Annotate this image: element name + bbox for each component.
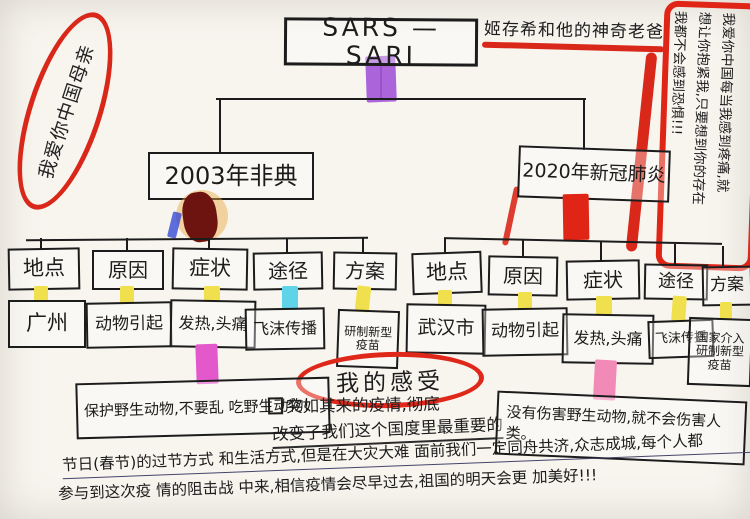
category-label: 症状 — [189, 257, 231, 281]
category-label: 原因 — [503, 264, 543, 287]
value-label: 广州 — [26, 312, 68, 336]
tree-line — [674, 244, 676, 266]
category-label: 方案 — [710, 276, 744, 296]
category-box: 原因 — [488, 255, 559, 296]
red-highlight-connector — [563, 194, 590, 240]
small-square-doodle — [268, 397, 283, 414]
category-box: 症状 — [566, 259, 641, 300]
tree-line — [600, 242, 602, 262]
category-box: 方案 — [333, 251, 398, 290]
value-label: 飞沫传播 — [253, 319, 317, 338]
tree-line — [583, 98, 585, 150]
value-label: 武汉市 — [417, 318, 474, 340]
value-label: 发热,头痛 — [178, 314, 247, 333]
title-text: SARS — SARI — [287, 13, 475, 70]
category-box: 地点 — [411, 251, 482, 295]
category-label: 症状 — [583, 268, 623, 291]
rotated-note-line: 我爱你中国每当我感到疼痛,就 — [712, 12, 740, 253]
category-box: 症状 — [172, 247, 249, 290]
category-label: 原因 — [108, 259, 148, 281]
branch-label: 2003年非典 — [164, 163, 297, 190]
branch-box-2003: 2003年非典 — [148, 152, 314, 200]
rotated-note-line: 我都不会感到恐惧!!! — [664, 11, 692, 252]
value-label: 动物引起 — [491, 322, 559, 342]
category-box: 地点 — [8, 247, 81, 290]
note-middle-line1: 突如其来的疫情,彻底 — [268, 391, 440, 418]
magenta-highlight-connector — [195, 344, 218, 385]
branch-label: 2020年新冠肺炎 — [522, 161, 666, 187]
value-label: 动物引起 — [95, 315, 163, 335]
category-box: 原因 — [92, 250, 164, 290]
category-label: 地点 — [23, 257, 65, 281]
value-box: 发热,头痛 — [170, 299, 257, 348]
red-underline — [482, 42, 664, 53]
rotated-note-line: 想让你抱紧我,只要想到你的存在 — [688, 11, 716, 252]
title-box: SARS — SARI — [284, 17, 478, 66]
category-box: 方案 — [702, 266, 750, 307]
value-label: 发热,头痛 — [573, 329, 642, 348]
value-label: 国家介入研制新型疫苗 — [690, 331, 749, 373]
branch-box-2020: 2020年新冠肺炎 — [517, 145, 671, 202]
category-label: 方案 — [345, 259, 385, 282]
top-right-caption: 姬存希和他的神奇老爸 — [484, 14, 664, 42]
note-middle-text1: 突如其来的疫情,彻底 — [286, 395, 440, 417]
category-label: 途径 — [268, 259, 308, 282]
value-box: 国家介入研制新型疫苗 — [687, 317, 750, 387]
yellow-highlight-connector — [671, 296, 687, 323]
value-box: 发热,头痛 — [562, 313, 655, 365]
category-label: 途径 — [658, 272, 694, 293]
rotated-note: 我爱你中国每当我感到疼痛,就 想让你抱紧我,只要想到你的存在 我都不会感到恐惧!… — [664, 11, 740, 253]
value-box: 动物引起 — [86, 301, 173, 348]
red-circle-annotation: 我爱你中国母亲 — [0, 2, 132, 221]
tree-line — [219, 98, 221, 154]
value-box: 飞沫传播 — [245, 307, 326, 350]
value-box: 广州 — [8, 300, 86, 348]
tree-line — [216, 98, 586, 100]
mind-map-page: 我爱你中国母亲 SARS — SARI 姬存希和他的神奇老爸 我爱你中国每当我感… — [0, 0, 750, 519]
tree-line — [722, 246, 724, 268]
category-box: 途径 — [253, 251, 324, 290]
yellow-highlight-connector — [355, 285, 372, 312]
value-box: 武汉市 — [406, 303, 487, 354]
category-label: 地点 — [426, 261, 469, 286]
value-box: 动物引起 — [482, 307, 569, 356]
cyan-highlight-connector — [282, 286, 298, 310]
circled-slogan-text: 我爱你中国母亲 — [31, 40, 100, 182]
red-frame-annotation: 我爱你中国每当我感到疼痛,就 想让你抱紧我,只要想到你的存在 我都不会感到恐惧!… — [655, 0, 750, 271]
value-label: 研制新型疫苗 — [340, 325, 397, 354]
